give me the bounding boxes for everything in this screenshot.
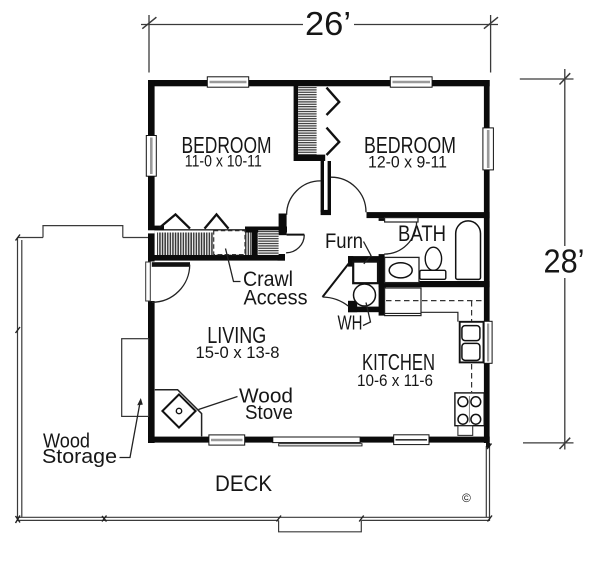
svg-text:26’: 26’: [305, 5, 351, 42]
svg-text:11-0 x 10-11: 11-0 x 10-11: [185, 153, 262, 171]
svg-text:12-0 x 9-11: 12-0 x 9-11: [368, 154, 447, 172]
svg-text:©: ©: [462, 491, 471, 505]
svg-text:WH: WH: [338, 313, 363, 335]
svg-text:28’: 28’: [544, 243, 585, 280]
svg-text:Stove: Stove: [245, 402, 293, 424]
svg-text:Furn: Furn: [325, 230, 363, 253]
svg-text:BATH: BATH: [398, 221, 446, 246]
svg-text:15-0 x 13-8: 15-0 x 13-8: [196, 344, 280, 362]
svg-text:DECK: DECK: [215, 471, 272, 496]
svg-text:Storage: Storage: [42, 446, 117, 468]
svg-text:10-6 x 11-6: 10-6 x 11-6: [357, 372, 433, 390]
svg-text:Access: Access: [244, 287, 308, 310]
svg-text:KITCHEN: KITCHEN: [362, 349, 435, 375]
